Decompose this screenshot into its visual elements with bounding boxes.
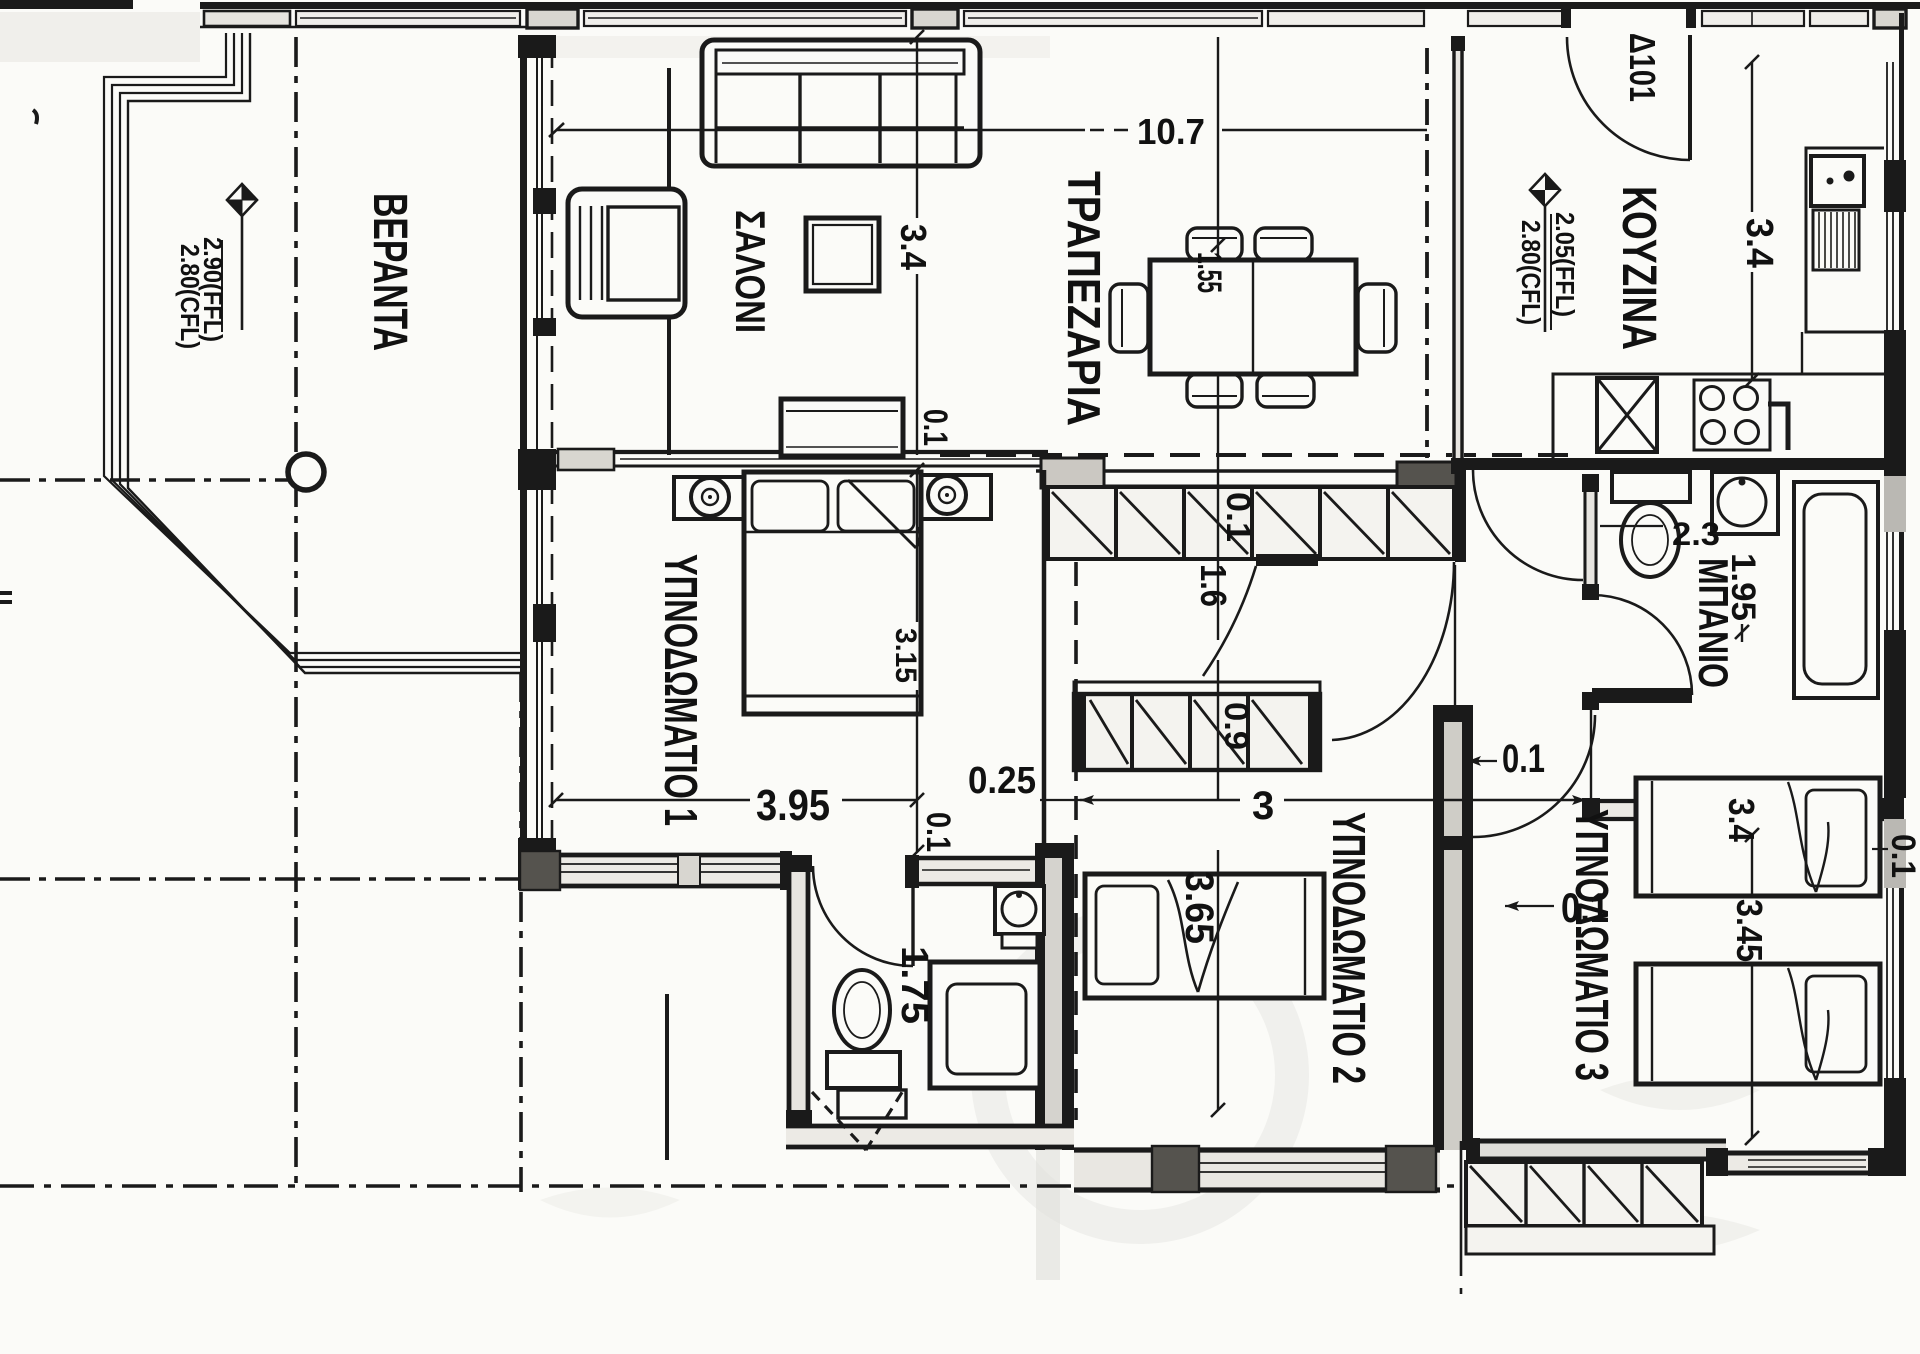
svg-text:3.45: 3.45 [1729, 899, 1770, 962]
svg-text:1.75: 1.75 [893, 946, 935, 1024]
svg-text:ΚΟΥΖΙΝΑ: ΚΟΥΖΙΝΑ [1612, 186, 1665, 350]
svg-text:0.1: 0.1 [1219, 492, 1257, 542]
svg-text:1.55: 1.55 [1190, 252, 1228, 293]
svg-text:0.1: 0.1 [916, 409, 954, 446]
svg-text:3.4: 3.4 [1738, 218, 1780, 268]
svg-text:ΥΠΝΟΔΩΜΑΤΙΟ 2: ΥΠΝΟΔΩΜΑΤΙΟ 2 [1323, 812, 1375, 1084]
svg-text:2.80(CFL): 2.80(CFL) [1516, 220, 1546, 325]
svg-text:0.1: 0.1 [1884, 834, 1920, 878]
svg-text:2.3: 2.3 [1672, 516, 1720, 552]
svg-text:ΥΠΝΟΔΩΜΑΤΙΟ 1: ΥΠΝΟΔΩΜΑΤΙΟ 1 [655, 554, 707, 826]
svg-text:ΒΕΡΑΝΤΑ: ΒΕΡΑΝΤΑ [363, 193, 416, 351]
svg-text:ΣΑΛΟΝΙ: ΣΑΛΟΝΙ [727, 210, 774, 333]
svg-text:2.80(CFL): 2.80(CFL) [175, 244, 205, 349]
svg-text:1.95: 1.95 [1724, 553, 1762, 621]
svg-text:0.1: 0.1 [919, 812, 957, 852]
svg-text:3.95: 3.95 [756, 781, 830, 830]
svg-text:2.05(FFL): 2.05(FFL) [1550, 212, 1580, 317]
svg-text:1.6: 1.6 [1193, 564, 1234, 607]
svg-text:10.7: 10.7 [1137, 111, 1205, 152]
svg-text:3.4: 3.4 [1721, 798, 1762, 842]
svg-text:ΥΠΝΟΔΩΜΑΤΙΟ 3: ΥΠΝΟΔΩΜΑΤΙΟ 3 [1566, 809, 1618, 1081]
svg-text:Δ101: Δ101 [1622, 33, 1663, 102]
svg-text:3: 3 [1252, 784, 1274, 828]
svg-text:ΤΡΑΠΕΖΑΡΙΑ: ΤΡΑΠΕΖΑΡΙΑ [1058, 171, 1110, 426]
svg-text:0.1: 0.1 [1561, 884, 1609, 931]
svg-text:0.9: 0.9 [1217, 702, 1255, 750]
svg-text:0.25: 0.25 [968, 760, 1036, 802]
svg-text:3.65: 3.65 [1177, 871, 1221, 944]
svg-text:0.1: 0.1 [1502, 737, 1545, 781]
svg-text:3.4: 3.4 [893, 224, 934, 270]
svg-text:3.15: 3.15 [889, 628, 922, 683]
